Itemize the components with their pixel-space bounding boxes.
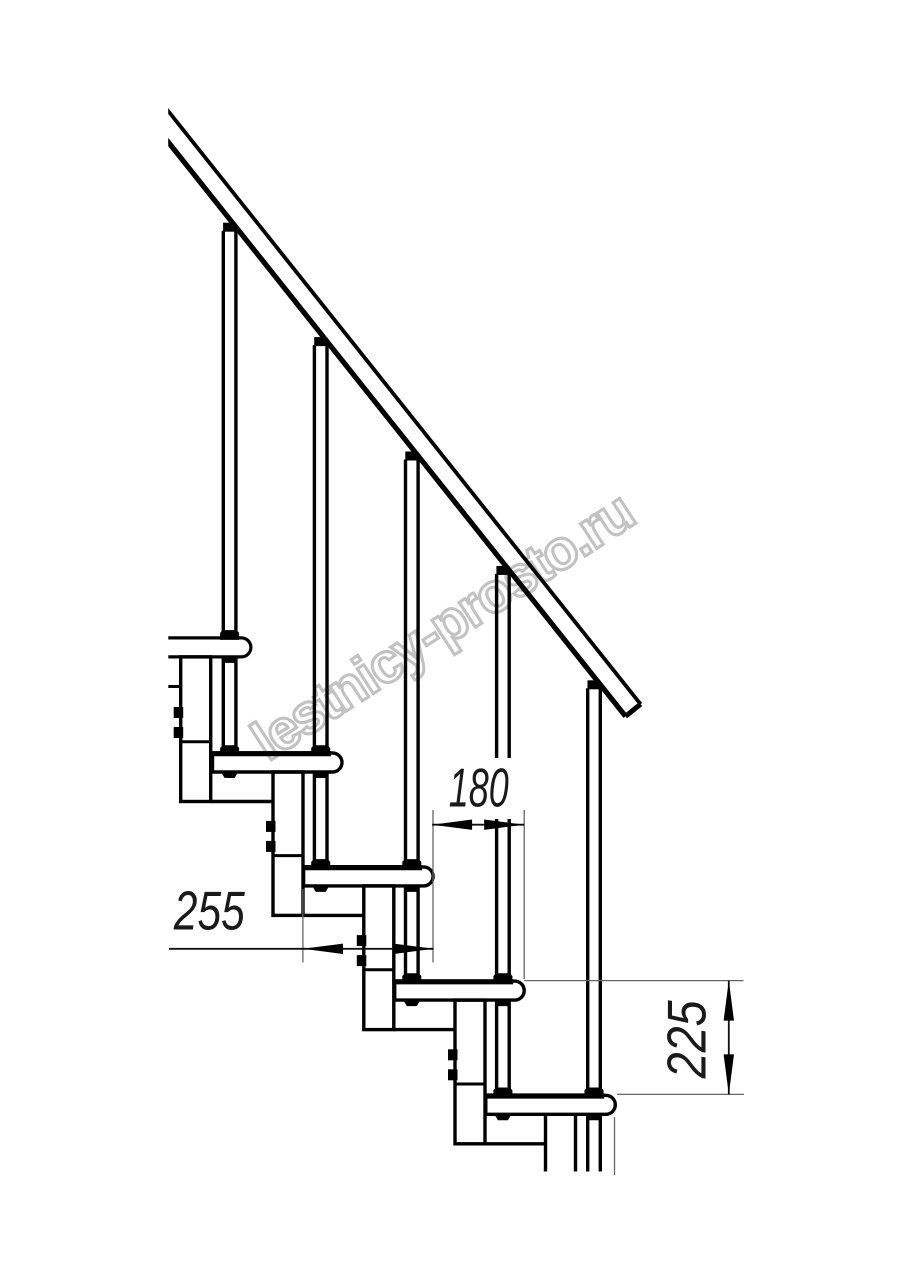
svg-text:180: 180 [449, 757, 509, 819]
svg-text:225: 225 [656, 1000, 718, 1079]
svg-text:255: 255 [173, 880, 245, 942]
